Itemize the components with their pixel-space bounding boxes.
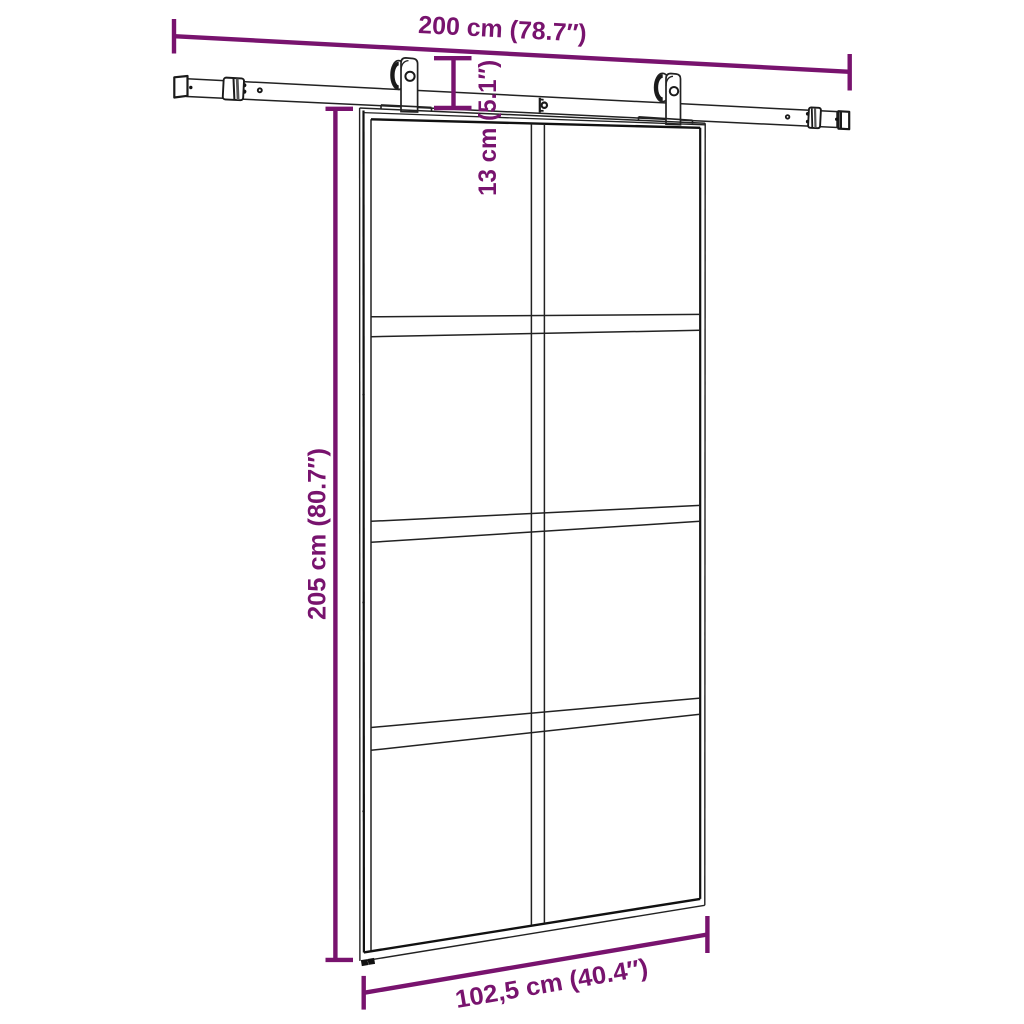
svg-text:13 cm (5.1″): 13 cm (5.1″) xyxy=(474,60,502,196)
svg-text:205 cm (80.7″): 205 cm (80.7″) xyxy=(303,448,331,620)
